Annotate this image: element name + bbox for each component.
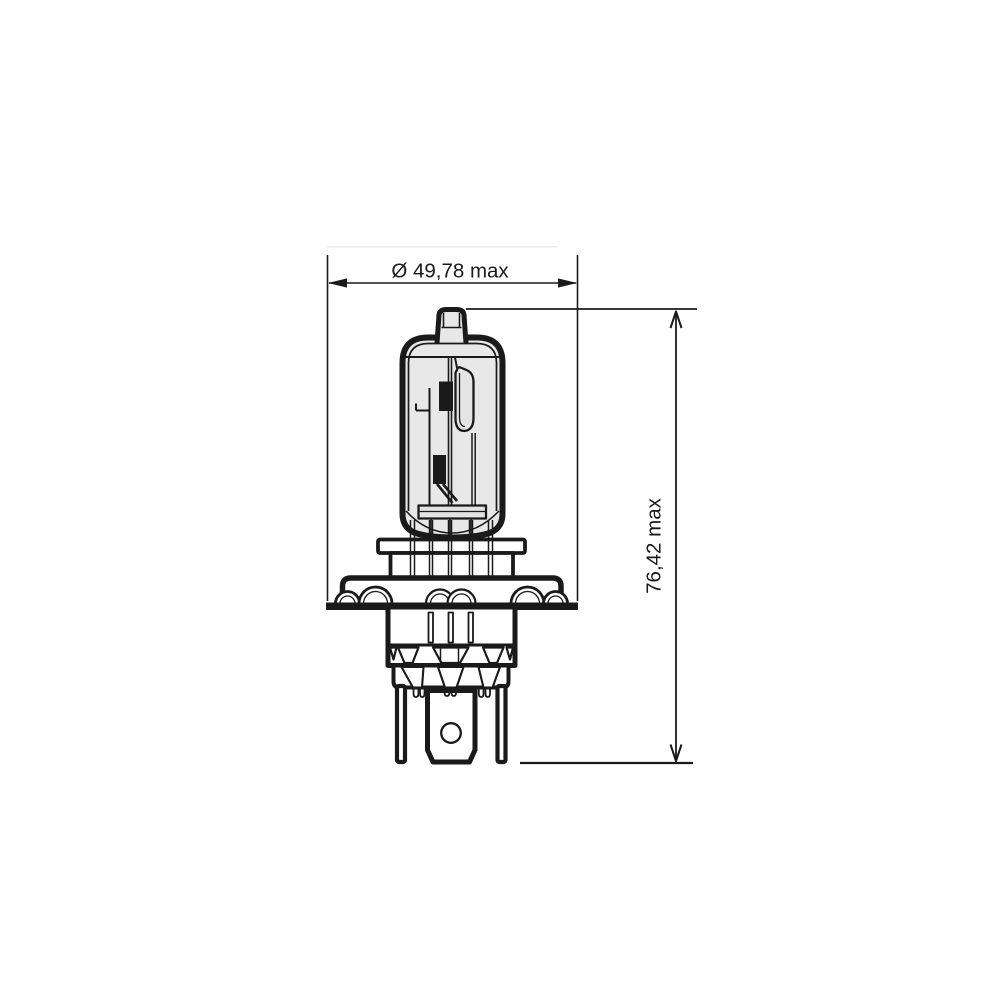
arrowhead-left-icon [328, 278, 347, 287]
faint-artifact-line [327, 246, 557, 248]
drawing-canvas: Ø 49,78 max 76,42 max [0, 0, 1000, 1000]
connector-pins [397, 667, 506, 762]
crimp-wedges-row2 [402, 667, 501, 697]
pin-right [498, 686, 506, 762]
crimp-wedges-row1 [390, 648, 513, 664]
high-beam-filament [439, 382, 453, 412]
base-slot [429, 613, 434, 643]
base-slot [469, 613, 474, 643]
arrowhead-right-icon [558, 278, 577, 287]
pin-left [397, 686, 405, 762]
low-beam-filament [433, 455, 446, 484]
glass-envelope [403, 310, 503, 538]
bulb-technical-drawing: Ø 49,78 max 76,42 max [0, 0, 1000, 1000]
low-beam-shield [456, 367, 474, 431]
width-dimension-label: Ø 49,78 max [391, 260, 509, 283]
blade-hole [441, 723, 461, 743]
bulb [326, 310, 578, 763]
base-slot [449, 613, 454, 643]
height-dimension-label: 76,42 max [643, 497, 666, 593]
